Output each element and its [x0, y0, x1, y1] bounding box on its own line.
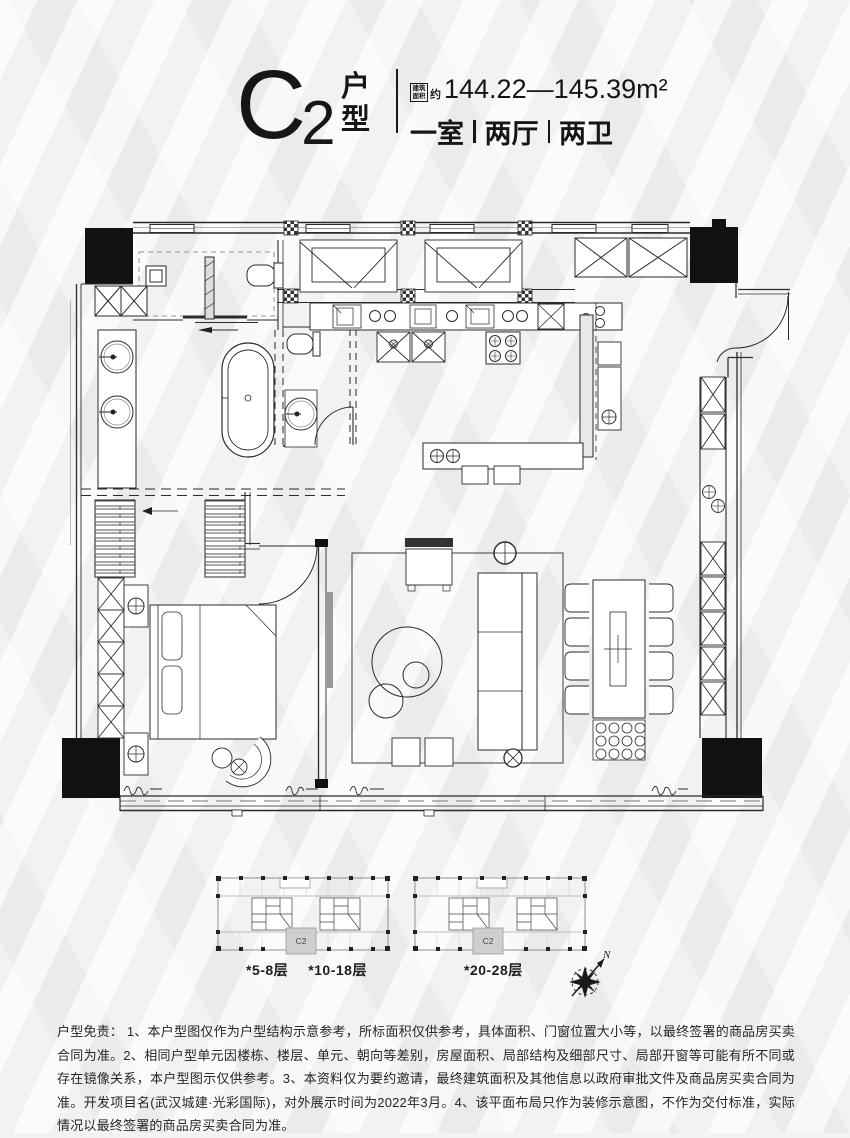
gas-stove	[486, 332, 520, 364]
floor-range-label: *5-8层	[246, 960, 288, 980]
bedroom-wardrobe-louver	[95, 500, 245, 577]
bed	[150, 605, 276, 739]
sink-mark-icon	[602, 410, 616, 424]
tv-panel	[327, 592, 333, 688]
window-bay-left	[300, 240, 397, 292]
living-room	[352, 538, 563, 767]
unit-highlight: C2	[286, 928, 316, 954]
dining-area	[565, 580, 673, 760]
bedroom-closet-column	[98, 578, 124, 738]
sofa	[478, 573, 537, 750]
key-plan-b: C2	[413, 876, 587, 954]
window-squiggle-marks	[124, 787, 688, 795]
plant-icon	[712, 500, 725, 513]
top-exterior-wall	[133, 221, 690, 235]
ottoman	[392, 738, 420, 766]
window-bay-right	[425, 240, 522, 292]
unit-highlight: C2	[473, 928, 503, 954]
nightstand	[124, 585, 148, 627]
nightstand	[124, 733, 148, 775]
breakfast-bar	[423, 443, 583, 484]
core-cluster	[517, 898, 557, 930]
core-cluster	[449, 898, 489, 930]
core-cluster	[252, 898, 292, 930]
bedroom-living-partition	[315, 539, 333, 788]
lamp-icon	[128, 598, 144, 614]
plant-box	[593, 720, 645, 760]
key-plan-a-floors: *5-8层 *10-18层	[246, 960, 367, 980]
bedroom-chair	[212, 737, 271, 787]
plant-icon	[703, 486, 716, 499]
compass-icon: N	[569, 949, 611, 998]
key-plan-b-floors: *20-28层	[464, 960, 523, 980]
guest-sink	[285, 390, 317, 447]
tv-bench	[405, 538, 453, 591]
bottom-window-band	[120, 787, 763, 817]
unit-label: C2	[296, 936, 307, 946]
corner-column-top-left	[85, 228, 133, 284]
hob-mark-icon	[431, 450, 444, 463]
toilet-guest	[287, 332, 320, 356]
sliding-door	[183, 317, 258, 333]
floor-range-label: *10-18层	[308, 960, 367, 980]
disclaimer-text: 户型免责： 1、本户型图仅作为户型结构示意参考，所标面积仅供参考，具体面积、门窗…	[57, 1020, 795, 1138]
kitchen-counter	[310, 303, 622, 330]
mirror	[205, 257, 214, 319]
foyer-closet-boxes	[575, 238, 687, 277]
coffee-table	[372, 627, 442, 697]
dishwasher-units	[377, 332, 445, 362]
floor-range-label: *20-28层	[464, 960, 523, 980]
floor-lamp-icon	[231, 759, 247, 775]
corner-column-bottom-right	[702, 738, 762, 798]
corner-column-top-right	[690, 219, 738, 283]
hob-mark-icon	[447, 450, 460, 463]
bathtub	[222, 343, 274, 457]
lamp-icon	[128, 746, 144, 762]
dressing-stool	[146, 266, 166, 286]
dressing-room	[133, 240, 283, 333]
core-cluster	[320, 898, 360, 930]
floor-plan: C2 C2	[0, 0, 850, 1133]
right-exterior-wall	[737, 352, 741, 738]
floor-lamp-icon	[504, 749, 522, 767]
bedroom-door	[259, 546, 317, 604]
guest-bath-door	[315, 407, 353, 445]
glass-partition	[275, 330, 283, 447]
north-label: N	[602, 949, 611, 961]
ottoman	[425, 738, 453, 766]
entry-door	[717, 296, 788, 362]
toilet-master	[247, 263, 283, 288]
kitchen-sink	[333, 305, 361, 328]
key-plan-a: C2	[216, 876, 390, 954]
unit-label: C2	[483, 936, 494, 946]
corner-column-bottom-left	[62, 738, 120, 798]
floor-lamp-icon	[494, 542, 516, 564]
right-closet-strip	[700, 377, 726, 738]
